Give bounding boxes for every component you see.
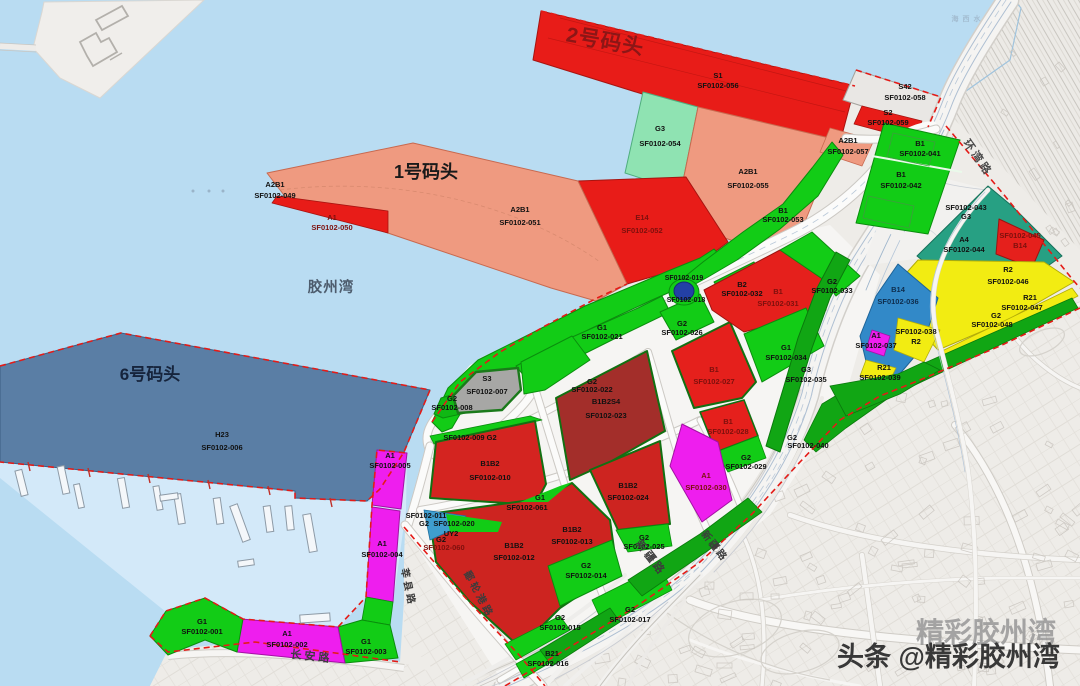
svg-text:SF0102-002: SF0102-002 [266,640,307,649]
svg-text:SF0102-046: SF0102-046 [987,277,1028,286]
svg-text:SF0102-053: SF0102-053 [762,215,803,224]
svg-text:SF0102-035: SF0102-035 [785,375,826,384]
svg-text:G2: G2 [447,394,457,403]
svg-text:B21: B21 [545,649,559,658]
svg-text:B1: B1 [915,139,925,148]
svg-text:G1: G1 [535,493,545,502]
svg-text:B1: B1 [778,206,788,215]
svg-text:6号码头: 6号码头 [120,365,180,384]
svg-text:SF0102-042: SF0102-042 [880,181,921,190]
svg-text:SF0102-038: SF0102-038 [895,327,936,336]
svg-text:SF0102-012: SF0102-012 [493,553,534,562]
svg-text:SF0102-023: SF0102-023 [585,411,626,420]
svg-text:SF0102-051: SF0102-051 [499,218,540,227]
svg-text:G2: G2 [677,319,687,328]
svg-text:H23: H23 [215,430,229,439]
svg-text:R21: R21 [877,363,891,372]
svg-text:SF0102-036: SF0102-036 [877,297,918,306]
svg-text:SF0102-030: SF0102-030 [685,483,726,492]
svg-text:SF0102-014: SF0102-014 [565,571,607,580]
svg-text:1号码头: 1号码头 [394,162,458,182]
svg-text:SF0102-058: SF0102-058 [884,93,925,102]
svg-text:SF0102-060: SF0102-060 [423,543,464,552]
svg-text:海西水: 海西水 [952,14,985,23]
svg-text:S1: S1 [713,71,722,80]
svg-text:SF0102-027: SF0102-027 [693,377,734,386]
svg-text:头条 @精彩胶州湾: 头条 @精彩胶州湾 [837,641,1060,672]
svg-text:SF0102-057: SF0102-057 [827,147,868,156]
svg-text:E14: E14 [635,213,649,222]
svg-text:G2: G2 [581,561,591,570]
svg-text:S42: S42 [898,82,911,91]
svg-text:B1B2: B1B2 [618,481,637,490]
svg-text:A2B1: A2B1 [838,136,857,145]
svg-text:SF0102-021: SF0102-021 [581,332,622,341]
svg-text:B2: B2 [737,280,747,289]
svg-text:B1: B1 [709,365,719,374]
svg-text:SF0102-033: SF0102-033 [811,286,852,295]
svg-text:SF0102-059: SF0102-059 [867,118,908,127]
svg-text:SF0102-044: SF0102-044 [943,245,985,254]
svg-text:SF0102-016: SF0102-016 [527,659,568,668]
svg-text:A2B1: A2B1 [510,205,529,214]
svg-text:A1: A1 [385,451,395,460]
svg-text:A2B1: A2B1 [738,167,757,176]
svg-text:G1: G1 [597,323,607,332]
svg-text:SF0102-022: SF0102-022 [571,385,612,394]
svg-text:SF0102-055: SF0102-055 [727,181,768,190]
svg-text:G1: G1 [361,637,371,646]
svg-text:S2: S2 [883,108,892,117]
svg-text:G2: G2 [555,613,565,622]
svg-text:SF0102-048: SF0102-048 [971,320,1012,329]
svg-text:G3: G3 [801,365,811,374]
svg-text:S3: S3 [482,374,491,383]
svg-text:G3: G3 [655,124,665,133]
svg-text:SF0102-052: SF0102-052 [621,226,662,235]
svg-text:R2: R2 [911,337,921,346]
svg-text:SF0102-013: SF0102-013 [551,537,592,546]
svg-text:B14: B14 [891,285,906,294]
svg-text:SF0102-034: SF0102-034 [765,353,807,362]
svg-text:SF0102-031: SF0102-031 [757,299,798,308]
svg-text:G2: G2 [419,519,429,528]
svg-text:SF0102-032: SF0102-032 [721,289,762,298]
svg-text:SF0102-015: SF0102-015 [539,623,580,632]
svg-text:B1: B1 [773,287,783,296]
svg-text:SF0102-006: SF0102-006 [201,443,242,452]
svg-text:SF0102-028: SF0102-028 [707,427,748,436]
svg-text:A1: A1 [282,629,292,638]
svg-text:G2: G2 [741,453,751,462]
svg-text:SF0102-010: SF0102-010 [469,473,510,482]
svg-text:SF0102-018: SF0102-018 [667,297,706,304]
svg-text:SF0102-024: SF0102-024 [607,493,649,502]
svg-text:SF0102-047: SF0102-047 [1001,303,1042,312]
svg-text:SF0102-049: SF0102-049 [254,191,295,200]
svg-text:SF0102-005: SF0102-005 [369,461,410,470]
svg-text:B1: B1 [896,170,906,179]
svg-text:B1B2: B1B2 [562,525,581,534]
svg-text:SF0102-009 G2: SF0102-009 G2 [443,433,496,442]
svg-text:SF0102-041: SF0102-041 [899,149,940,158]
svg-text:B1B2S4: B1B2S4 [592,397,621,406]
svg-text:SF0102-037: SF0102-037 [855,341,896,350]
svg-text:SF0102-003: SF0102-003 [345,647,386,656]
svg-text:SF0102-054: SF0102-054 [639,139,681,148]
svg-text:SF0102-020: SF0102-020 [433,519,474,528]
svg-text:SF0102-017: SF0102-017 [609,615,650,624]
svg-text:SF0102-056: SF0102-056 [697,81,738,90]
svg-text:SF0102-008: SF0102-008 [431,403,472,412]
svg-text:SF0102-007: SF0102-007 [466,387,507,396]
svg-text:SF0102-061: SF0102-061 [506,503,547,512]
svg-text:G2: G2 [625,605,635,614]
svg-text:A1: A1 [377,539,387,548]
svg-text:SF0102-001: SF0102-001 [181,627,222,636]
svg-text:SF0102-039: SF0102-039 [859,373,900,382]
svg-text:SF0102-004: SF0102-004 [361,550,403,559]
svg-text:A2B1: A2B1 [265,180,284,189]
svg-text:胶州湾: 胶州湾 [308,278,355,296]
svg-text:G2: G2 [991,311,1001,320]
svg-text:G1: G1 [781,343,791,352]
svg-text:G2: G2 [827,277,837,286]
svg-text:A1: A1 [701,471,711,480]
svg-text:SF0102-045: SF0102-045 [999,231,1040,240]
svg-text:SF0102-026: SF0102-026 [661,328,702,337]
svg-text:SF0102-050: SF0102-050 [311,223,352,232]
svg-text:G3: G3 [961,212,971,221]
svg-text:SF0102-029: SF0102-029 [725,462,766,471]
svg-text:A4: A4 [959,235,969,244]
svg-text:B14: B14 [1013,241,1028,250]
svg-text:SF0102-043: SF0102-043 [945,203,986,212]
svg-text:SF0102-040: SF0102-040 [787,441,828,450]
svg-text:B1B2: B1B2 [504,541,523,550]
svg-text:G1: G1 [197,617,207,626]
svg-text:SF0102-019: SF0102-019 [665,275,704,282]
svg-text:R2: R2 [1003,265,1013,274]
svg-text:B1: B1 [723,417,733,426]
svg-text:R21: R21 [1023,293,1037,302]
svg-text:A1: A1 [327,213,337,222]
svg-text:A1: A1 [871,331,881,340]
svg-text:B1B2: B1B2 [480,459,499,468]
